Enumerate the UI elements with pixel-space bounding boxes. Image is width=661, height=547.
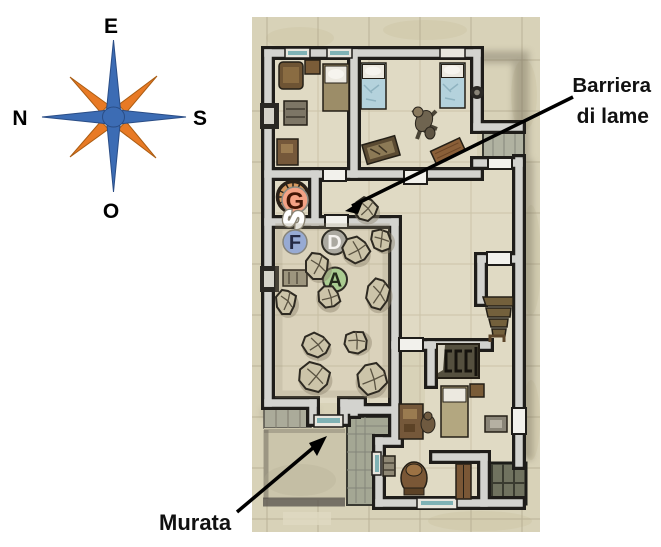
svg-text:E: E (104, 15, 118, 38)
svg-text:O: O (103, 200, 119, 223)
svg-text:Murata: Murata (159, 510, 232, 535)
svg-text:S: S (193, 107, 207, 130)
svg-text:N: N (12, 107, 27, 130)
svg-text:Barriera: Barriera (572, 74, 651, 97)
svg-text:di lame: di lame (577, 105, 649, 128)
